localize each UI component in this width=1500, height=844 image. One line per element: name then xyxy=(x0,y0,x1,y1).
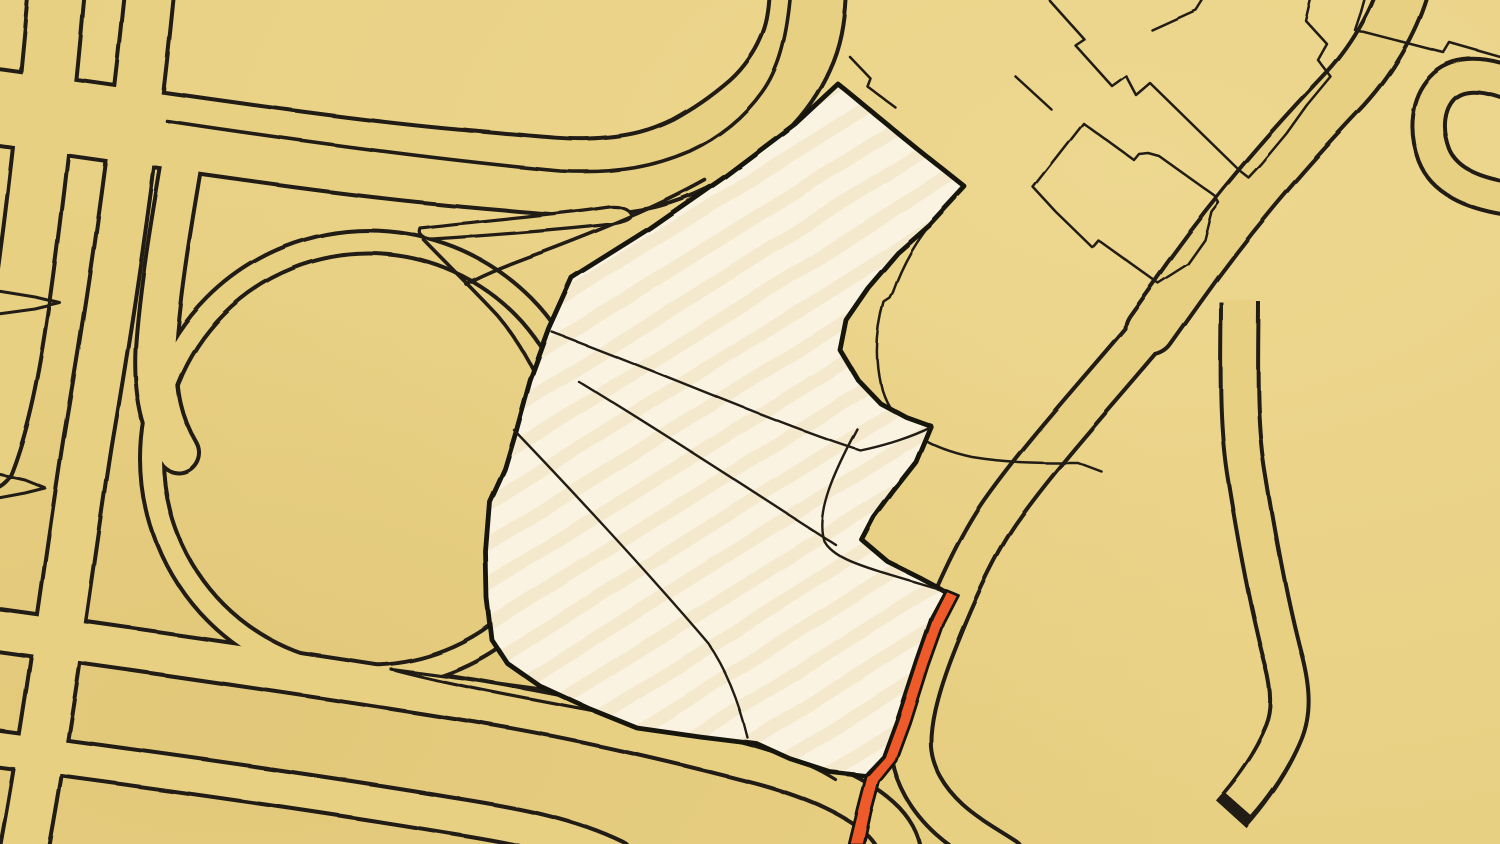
hand-drawn-map-svg xyxy=(0,0,1500,844)
map-canvas[interactable] xyxy=(0,0,1500,844)
